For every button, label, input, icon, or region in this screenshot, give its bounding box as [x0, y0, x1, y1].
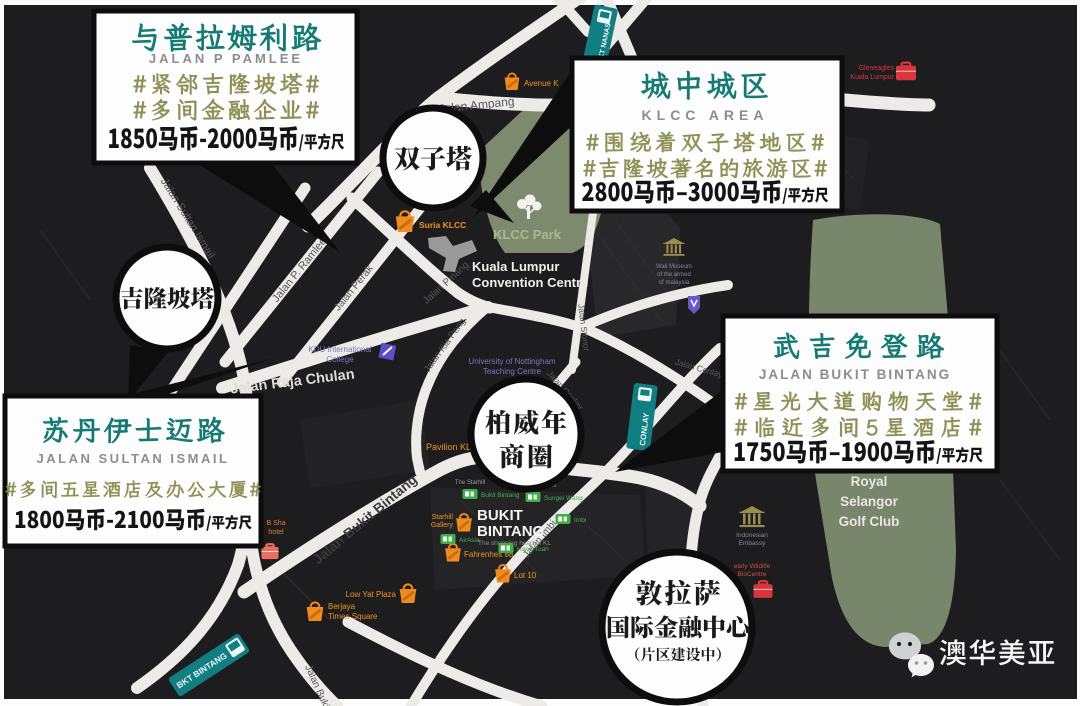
svg-text:BioCentre: BioCentre — [738, 571, 767, 578]
svg-text:Imbi: Imbi — [574, 517, 586, 524]
svg-text:Gallery: Gallery — [431, 522, 454, 529]
svg-text:Pavilion KL: Pavilion KL — [426, 442, 471, 452]
svg-text:AirAsia: AirAsia — [459, 537, 480, 544]
svg-text:Sungei Wang: Sungei Wang — [544, 495, 583, 502]
svg-text:Suria KLCC: Suria KLCC — [419, 220, 466, 230]
svg-text:JALAN BUKIT BINTANG: JALAN BUKIT BINTANG — [759, 367, 951, 382]
svg-text:Convention Centre: Convention Centre — [472, 275, 588, 290]
svg-text:of the armed: of the armed — [657, 272, 691, 278]
svg-text:Hang Tuah: Hang Tuah — [517, 546, 549, 553]
svg-text:Bukit Bintang: Bukit Bintang — [481, 492, 520, 499]
svg-text:Lot 10: Lot 10 — [514, 571, 537, 580]
svg-text:Starhill: Starhill — [432, 514, 454, 521]
svg-text:Gleneagles: Gleneagles — [859, 65, 895, 72]
svg-text:Berjaya: Berjaya — [328, 602, 356, 611]
svg-text:hotel: hotel — [268, 529, 284, 536]
svg-text:B Sha: B Sha — [266, 520, 285, 527]
svg-text:JALAN P PAMLEE: JALAN P PAMLEE — [149, 51, 303, 66]
svg-text:JALAN SULTAN ISMAIL: JALAN SULTAN ISMAIL — [37, 451, 230, 466]
svg-text:KLCC Park: KLCC Park — [493, 227, 562, 242]
svg-text:early Wildlife: early Wildlife — [734, 563, 771, 570]
svg-text:Wali Museum: Wali Museum — [656, 264, 692, 270]
svg-text:Low Yat Plaza: Low Yat Plaza — [346, 590, 397, 599]
svg-text:Embassy: Embassy — [739, 540, 766, 547]
svg-text:Royal: Royal — [851, 474, 888, 489]
svg-text:KLCC AREA: KLCC AREA — [642, 107, 769, 123]
svg-text:Selangor: Selangor — [840, 494, 899, 509]
svg-text:Times Square: Times Square — [328, 612, 378, 621]
svg-text:College: College — [326, 355, 354, 364]
svg-text:Golf Club: Golf Club — [839, 514, 900, 529]
svg-text:BINTANG: BINTANG — [477, 523, 544, 540]
svg-text:KDU International: KDU International — [308, 345, 371, 354]
svg-text:of malaysia: of malaysia — [659, 280, 690, 286]
svg-text:Avenue K: Avenue K — [524, 79, 559, 88]
svg-text:Indonesian: Indonesian — [736, 532, 768, 539]
svg-text:BUKIT: BUKIT — [477, 507, 523, 524]
svg-text:University of Nottingham: University of Nottingham — [468, 357, 555, 366]
svg-text:Kuala Lumpur: Kuala Lumpur — [850, 74, 894, 81]
svg-text:Teaching Centre: Teaching Centre — [483, 367, 542, 376]
svg-text:Kuala Lumpur: Kuala Lumpur — [472, 259, 559, 274]
svg-text:The Starhill: The Starhill — [455, 480, 485, 486]
